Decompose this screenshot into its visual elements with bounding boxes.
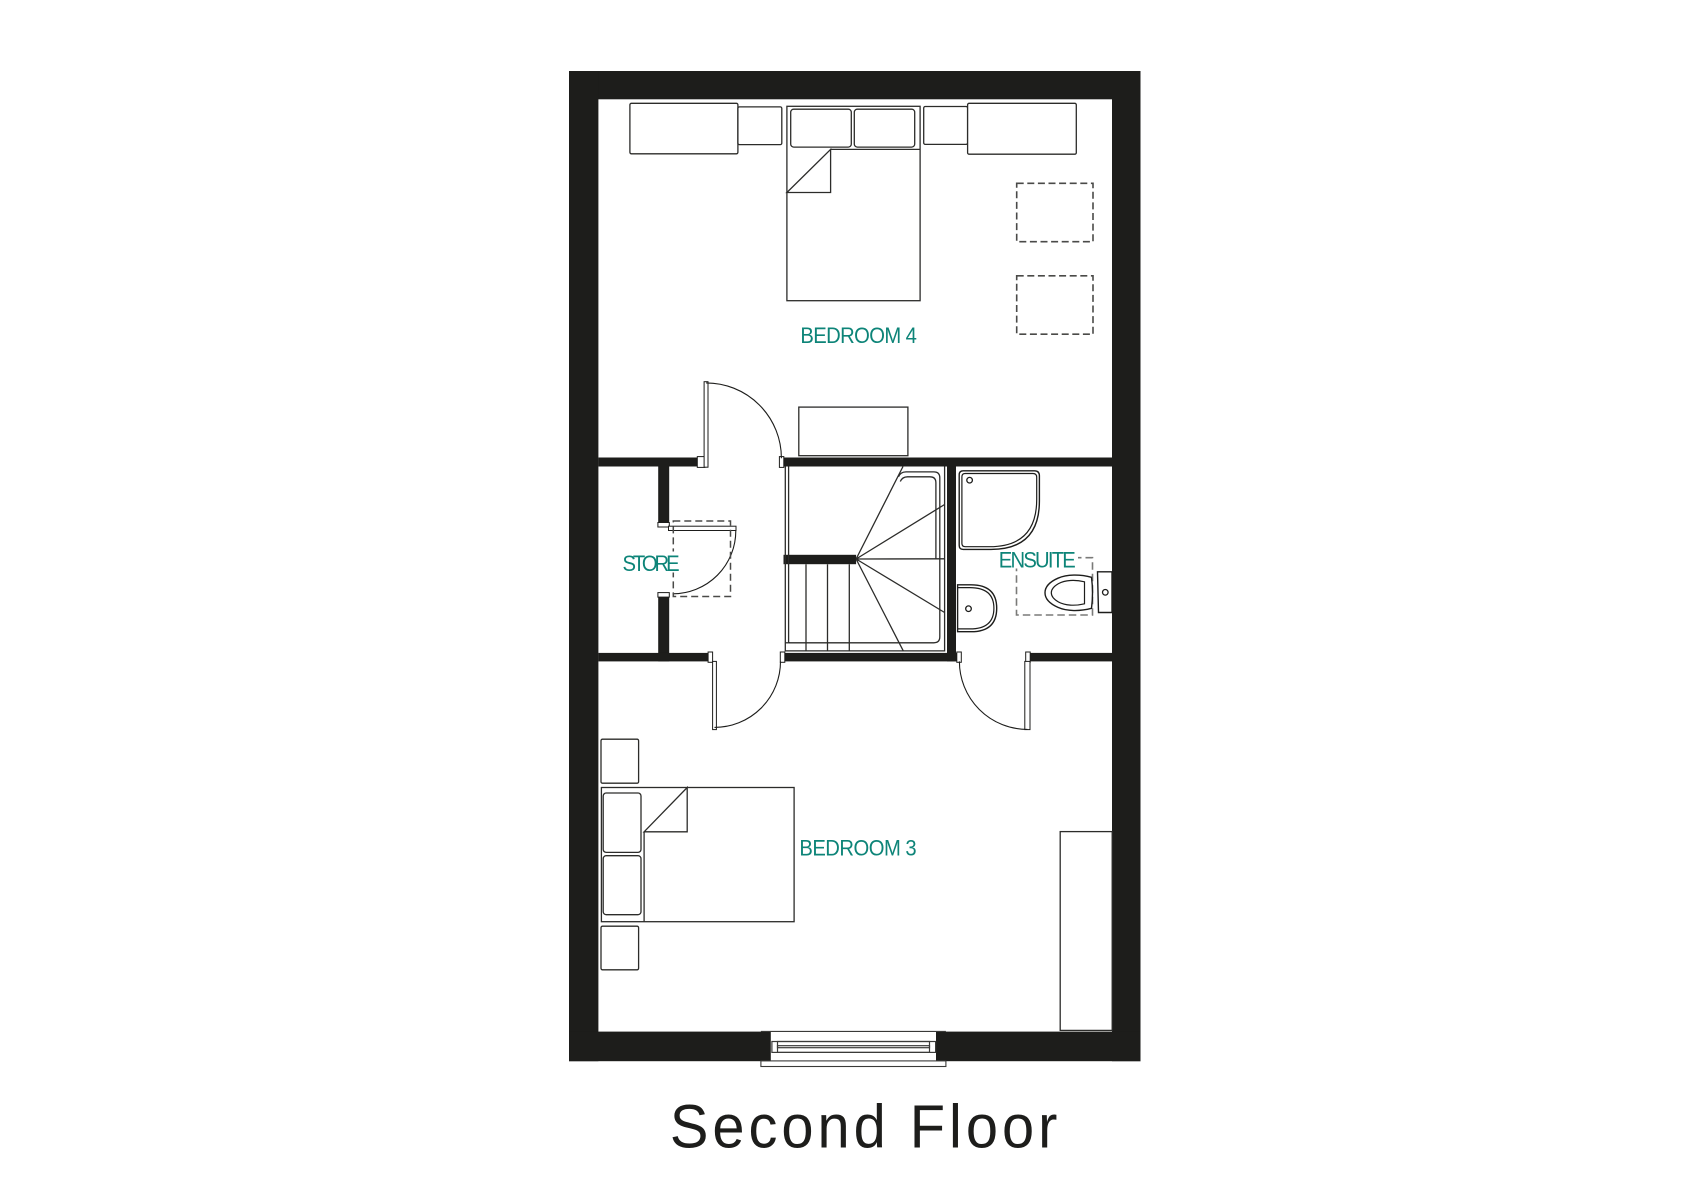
svg-text:ENSUITE: ENSUITE [999, 549, 1076, 573]
svg-text:STORE: STORE [622, 552, 679, 576]
svg-text:BEDROOM 3: BEDROOM 3 [799, 837, 916, 861]
svg-text:BEDROOM 4: BEDROOM 4 [800, 324, 917, 348]
